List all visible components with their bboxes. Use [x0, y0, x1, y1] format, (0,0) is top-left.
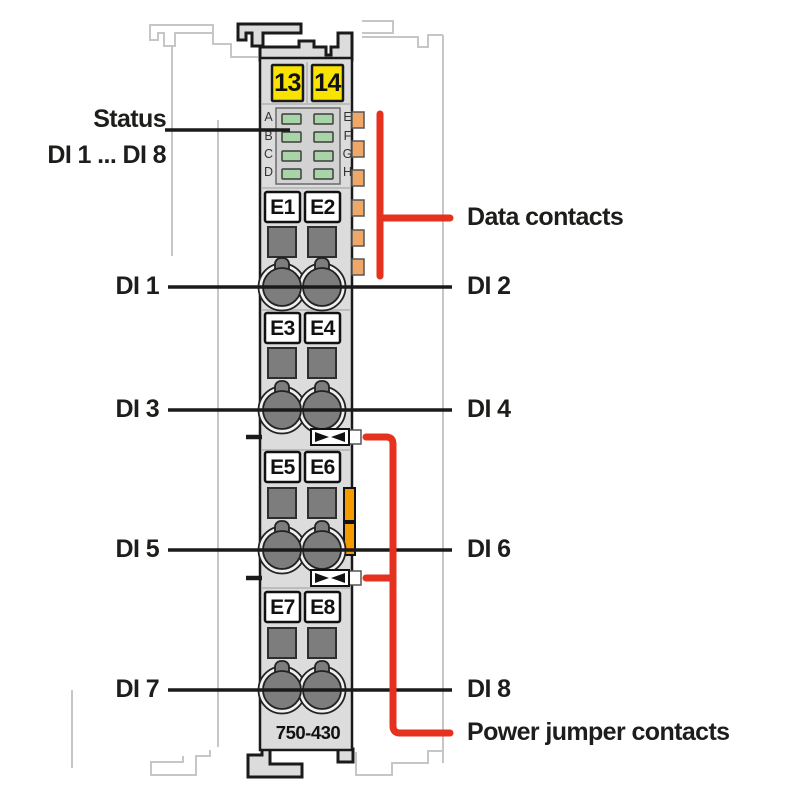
led-letter-g: G: [341, 148, 354, 161]
channel-label-di5: DI 5: [116, 536, 159, 564]
terminal-label-e1: E1: [265, 196, 300, 219]
neighbor-module-outline-left: [72, 25, 258, 775]
wire-entry: [308, 348, 336, 378]
led-letter-b: B: [262, 130, 275, 143]
status-led: [282, 151, 301, 161]
status-led: [314, 132, 333, 142]
terminal-label-e6: E6: [305, 456, 340, 479]
wire-entry: [268, 628, 296, 658]
status-label: Status: [93, 106, 166, 134]
terminal-number-14: 14: [312, 70, 343, 98]
channel-label-di2: DI 2: [467, 273, 510, 301]
data-contact-pin: [352, 230, 364, 246]
wire-entry: [308, 227, 336, 257]
wire-entry: [308, 488, 336, 518]
terminal-label-e7: E7: [265, 596, 300, 619]
status-channels-label: DI 1 ... DI 8: [47, 142, 166, 170]
terminal-label-e8: E8: [305, 596, 340, 619]
wire-entry: [308, 628, 336, 658]
status-led: [282, 132, 301, 142]
status-led: [282, 114, 301, 124]
red-callouts: [366, 114, 450, 733]
terminal-label-e3: E3: [265, 317, 300, 340]
data-contact-pin: [352, 200, 364, 216]
channel-label-di6: DI 6: [467, 536, 510, 564]
channel-label-di8: DI 8: [467, 676, 510, 704]
data-contacts-label: Data contacts: [467, 204, 623, 232]
wire-entry: [268, 227, 296, 257]
latch-upper: [344, 488, 355, 521]
led-letter-c: C: [262, 148, 275, 161]
power-jumper-contact-icon-upper: [311, 429, 361, 445]
module-number: 750-430: [264, 723, 352, 743]
power-jumper-contacts-label: Power jumper contacts: [467, 719, 729, 747]
led-letter-a: A: [262, 111, 275, 124]
terminal-number-13: 13: [272, 70, 303, 98]
led-letter-d: D: [262, 166, 275, 179]
led-letter-f: F: [341, 130, 354, 143]
led-letter-e: E: [341, 111, 354, 124]
neighbor-module-outline-right: [356, 21, 443, 775]
channel-label-di4: DI 4: [467, 396, 510, 424]
channel-label-di7: DI 7: [116, 676, 159, 704]
led-letter-h: H: [341, 166, 354, 179]
status-led: [282, 169, 301, 179]
wire-entry: [268, 348, 296, 378]
module-head: [238, 24, 352, 60]
io-module-diagram: Status DI 1 ... DI 8 DI 1 DI 3 DI 5 DI 7…: [0, 0, 800, 800]
power-jumper-contact-icon-lower: [311, 570, 361, 586]
terminal-label-e2: E2: [305, 196, 340, 219]
channel-label-di1: DI 1: [116, 273, 159, 301]
status-led: [314, 151, 333, 161]
terminal-label-e4: E4: [305, 317, 340, 340]
status-led: [314, 114, 333, 124]
wire-entry: [268, 488, 296, 518]
data-contact-pin: [352, 259, 364, 275]
terminal-label-e5: E5: [265, 456, 300, 479]
status-led: [314, 169, 333, 179]
module-foot: [248, 749, 353, 777]
channel-label-di3: DI 3: [116, 396, 159, 424]
